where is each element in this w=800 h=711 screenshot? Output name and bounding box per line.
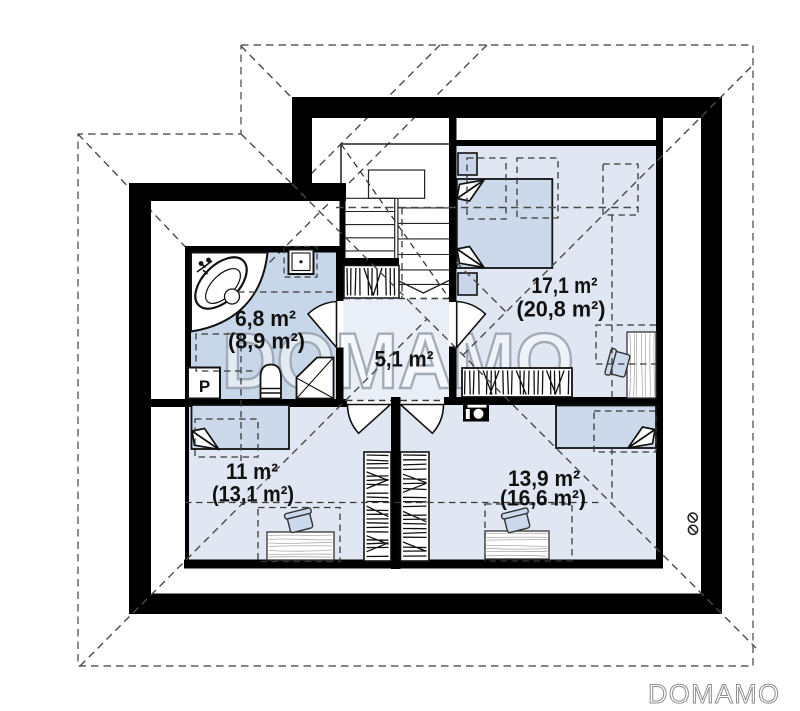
svg-text:P: P xyxy=(199,377,210,396)
svg-text:(16,6 m²): (16,6 m²) xyxy=(500,486,586,511)
svg-text:6,8 m²: 6,8 m² xyxy=(235,306,296,331)
svg-text:(20,8 m²): (20,8 m²) xyxy=(517,297,606,322)
svg-text:11 m²: 11 m² xyxy=(226,459,278,484)
svg-text:DOMAMO: DOMAMO xyxy=(648,679,781,709)
svg-text:(8,9 m²): (8,9 m²) xyxy=(228,329,305,354)
svg-text:5,1 m²: 5,1 m² xyxy=(375,347,434,372)
svg-text:(13,1 m²): (13,1 m²) xyxy=(212,482,294,507)
svg-text:17,1 m²: 17,1 m² xyxy=(532,273,598,298)
